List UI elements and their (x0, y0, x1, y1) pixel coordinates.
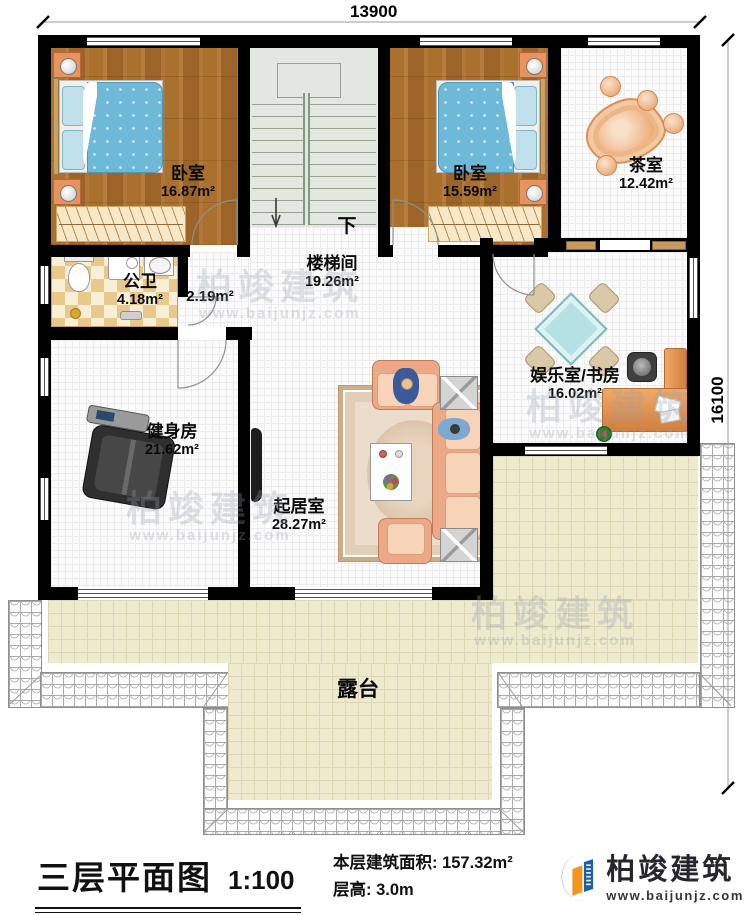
logo-building-blue (584, 859, 593, 892)
logo-building-orange (573, 865, 583, 896)
label-bedroom-left: 卧室 16.87m² (133, 164, 243, 200)
wall (438, 245, 548, 257)
drawing-title-text: 三层平面图 (37, 851, 212, 899)
room-name: 娱乐室/书房 (500, 366, 650, 386)
bed-sheet-fold (83, 82, 97, 171)
label-entertainment-study: 娱乐室/书房 16.02m² (500, 366, 650, 402)
window (420, 37, 512, 46)
nightstand (53, 179, 81, 205)
wall (480, 443, 493, 600)
wall (51, 245, 190, 257)
label-stair-hall: 楼梯间 19.26m² (277, 254, 387, 290)
room-name: 起居室 (244, 497, 354, 517)
room-area: 28.27m² (244, 517, 354, 534)
floor-drain (70, 308, 81, 319)
sliding-door (78, 589, 208, 598)
roof-edge-center-right (500, 708, 525, 835)
sofa-armchair (378, 518, 432, 564)
room-area: 19.26m² (277, 274, 387, 291)
label-tea-room: 茶室 12.42m² (591, 156, 701, 192)
wall (480, 238, 493, 443)
room-area: 2.19m² (155, 288, 265, 305)
person-head (401, 378, 413, 390)
label-gym: 健身房 21.62m² (117, 422, 227, 458)
roof-edge-bottom-band (203, 808, 525, 835)
roof-edge-left-band (40, 672, 230, 708)
window (40, 478, 49, 520)
drawing-notes: 本层建筑面积: 157.32m² 层高: 3.0m (333, 850, 513, 904)
sofa-cushion (445, 452, 481, 494)
wall (38, 587, 78, 600)
dimension-tick (722, 782, 734, 794)
drawing-title: 三层平面图 1:100 (35, 851, 301, 909)
closet-right-bedroom (428, 206, 542, 242)
nightstand (519, 52, 547, 78)
side-table (440, 528, 478, 562)
washer-drum (126, 257, 138, 269)
stair-rail (303, 93, 310, 225)
window (525, 446, 607, 455)
dimension-top: 13900 (350, 2, 397, 22)
bed-right (434, 78, 546, 175)
room-name: 健身房 (117, 422, 227, 442)
treadmill (70, 404, 185, 516)
logo-icon (554, 851, 600, 907)
room-area: 12.42m² (591, 176, 701, 193)
sofa-cushion (387, 523, 425, 555)
sliding-door (295, 589, 432, 598)
logo-text-block: 柏竣建筑 www.baijunjz.com (606, 856, 744, 903)
tea-stool (600, 76, 621, 97)
roof-edge-right (700, 443, 735, 708)
room-area: 16.02m² (500, 386, 650, 403)
wall (226, 327, 252, 340)
terrace-floor-band (48, 600, 698, 663)
room-area: 21.62m² (117, 442, 227, 459)
dimension-tick (694, 16, 706, 28)
tea-stool (663, 113, 684, 134)
window (588, 37, 660, 46)
flower-vase (381, 472, 401, 492)
stairs-direction-label: 下 (332, 216, 362, 238)
bed-pillow (62, 130, 85, 170)
tv (251, 428, 262, 502)
wall (548, 48, 561, 250)
table-decor (379, 450, 387, 458)
coffee-table (370, 443, 412, 501)
floor-plan: 13900 16100 卧室 16.87m² 卧室 15.59m² 茶室 12.… (0, 0, 750, 915)
label-terrace: 露台 (303, 678, 413, 702)
stair-treads (252, 97, 376, 225)
bed-left (53, 78, 165, 175)
window (40, 358, 49, 396)
drawing-scale: 1:100 (228, 865, 295, 896)
company-name: 柏竣建筑 (606, 856, 744, 885)
room-name: 露台 (303, 678, 413, 702)
wall (238, 48, 250, 245)
bed-headboard (540, 78, 546, 175)
roof-edge-left (8, 600, 42, 708)
floor-height-note: 层高: 3.0m (333, 877, 513, 904)
table-decor (395, 450, 403, 458)
opening-casing (566, 241, 596, 250)
wall (38, 327, 178, 340)
label-living-room: 起居室 28.27m² (244, 497, 354, 533)
company-logo: 柏竣建筑 www.baijunjz.com (554, 851, 744, 907)
closet-left-bedroom (56, 206, 186, 242)
window (40, 266, 49, 304)
room-area: 16.87m² (133, 184, 243, 201)
company-website: www.baijunjz.com (606, 888, 744, 903)
bed-pillow (514, 86, 537, 126)
person-figure (393, 368, 419, 404)
nightstand (53, 52, 81, 78)
wall (237, 245, 250, 257)
label-vestibule: 2.19m² (155, 288, 265, 305)
room-name: 卧室 (415, 164, 525, 184)
window (87, 37, 200, 46)
bed-sheet-fold (502, 82, 516, 171)
bed-quilt (87, 82, 163, 173)
floor-area-note: 本层建筑面积: 157.32m² (333, 850, 513, 877)
wall (208, 587, 295, 600)
dimension-tick (37, 16, 49, 28)
roof-edge-right-band (497, 672, 700, 708)
wall (238, 340, 250, 587)
opening-casing (652, 241, 686, 250)
bed-pillow (62, 86, 85, 126)
person-head (450, 424, 460, 434)
label-bedroom-right: 卧室 15.59m² (415, 164, 525, 200)
wall (378, 48, 390, 245)
side-table (440, 376, 478, 410)
room-name: 茶室 (591, 156, 701, 176)
title-block: 三层平面图 1:100 本层建筑面积: 157.32m² 层高: 3.0m 柏竣… (0, 845, 750, 915)
cased-opening (600, 240, 650, 250)
tea-stool (637, 90, 658, 111)
person-figure (438, 418, 470, 440)
dimension-right: 16100 (708, 370, 728, 430)
room-name: 卧室 (133, 164, 243, 184)
room-name: 楼梯间 (277, 254, 387, 274)
window (689, 258, 698, 318)
shower-fitting (120, 311, 142, 320)
desk-plant (596, 426, 612, 442)
room-area: 15.59m² (415, 184, 525, 201)
treadmill-screen (96, 410, 115, 422)
dimension-tick (722, 34, 734, 46)
label-stairs-down: 下 (332, 216, 362, 238)
